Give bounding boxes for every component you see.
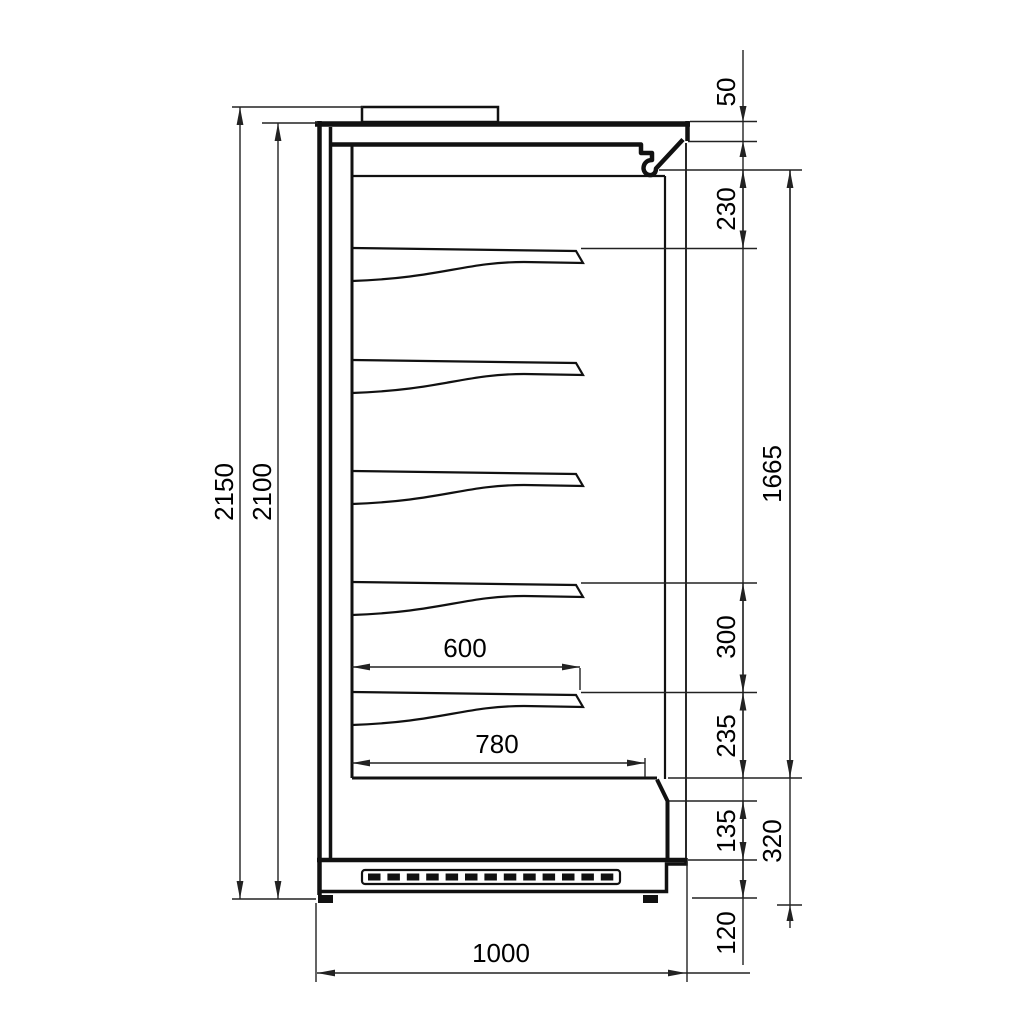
- section-drawing: 2150 2100 50 230 1665 300 235 135 320 12…: [0, 0, 1024, 1024]
- drawing-canvas: 2150 2100 50 230 1665 300 235 135 320 12…: [0, 0, 1024, 1024]
- dim-label-overall-depth: 1000: [472, 938, 530, 968]
- dim-label-display-opening: 1665: [757, 445, 787, 503]
- leveling-foot-front: [643, 895, 658, 903]
- ventilation-grille: [362, 870, 620, 884]
- shelf-2: [352, 360, 583, 393]
- dim-label-bottom-clearance: 235: [711, 714, 741, 757]
- air-discharge-claw: [330, 140, 683, 176]
- dimension-labels: 2150 2100 50 230 1665 300 235 135 320 12…: [209, 78, 787, 968]
- lower-front-step: [657, 780, 668, 859]
- dim-label-overall-height: 2150: [209, 463, 239, 521]
- dim-label-base-height: 320: [757, 819, 787, 862]
- top-vent-box: [362, 107, 498, 122]
- shelf-5: [352, 692, 583, 725]
- dim-label-top-clearance: 230: [711, 187, 741, 230]
- dim-label-shelf-depth: 600: [443, 633, 486, 663]
- shelf-1: [352, 248, 583, 281]
- dim-label-front-lower: 135: [711, 809, 741, 852]
- cabinet-outline: [315, 107, 690, 903]
- dim-label-case-height: 2100: [247, 463, 277, 521]
- dim-label-plinth-height: 120: [711, 911, 741, 954]
- dim-label-canopy-front: 50: [711, 78, 741, 107]
- shelf-3: [352, 471, 583, 504]
- leveling-foot-rear: [318, 895, 333, 903]
- shelf-4: [352, 582, 583, 615]
- dim-label-shelf-pitch: 300: [711, 615, 741, 658]
- dim-label-well-depth: 780: [475, 729, 518, 759]
